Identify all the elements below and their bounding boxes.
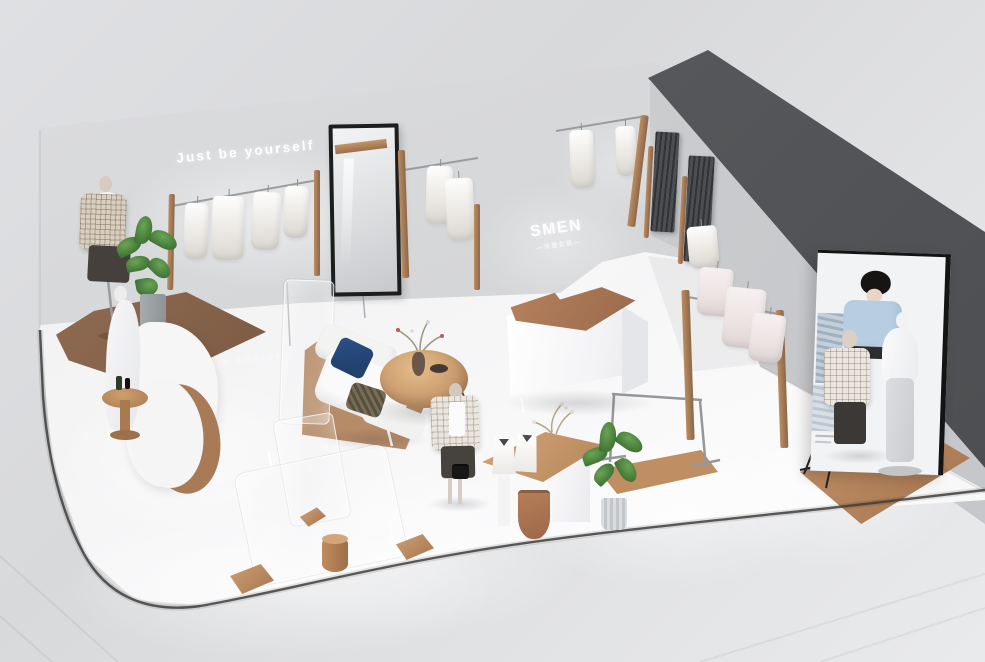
plant-leaf bbox=[614, 427, 646, 456]
hanging-garment bbox=[211, 196, 244, 261]
mannequin-leg bbox=[458, 479, 462, 504]
display-table-leg bbox=[498, 468, 510, 526]
leaning-mirror bbox=[329, 123, 402, 296]
mannequin-head bbox=[99, 176, 112, 192]
plant-leaf bbox=[614, 455, 641, 486]
hanging-garment bbox=[251, 191, 282, 250]
hanging-garment bbox=[569, 130, 595, 189]
table-vase bbox=[412, 352, 425, 376]
mirror-reflection-shelf bbox=[335, 139, 388, 154]
white-mannequin-base bbox=[878, 466, 922, 476]
white-shopping-bag bbox=[492, 438, 516, 474]
mirror-highlight bbox=[340, 158, 354, 268]
plant-leaf bbox=[148, 226, 180, 254]
side-table-leg bbox=[120, 400, 130, 434]
hanging-garment bbox=[283, 186, 309, 239]
white-mannequin-torso bbox=[882, 328, 918, 382]
side-table-base bbox=[110, 430, 140, 440]
white-mannequin-head bbox=[896, 312, 910, 329]
rack-post bbox=[314, 170, 320, 276]
mannequin-plaid-jacket bbox=[824, 348, 870, 406]
black-handbag bbox=[452, 464, 469, 479]
wood-stool-top bbox=[322, 534, 348, 544]
mannequin-skirt bbox=[834, 402, 866, 444]
brown-bag bbox=[518, 490, 550, 539]
store-render-scene: Just be yourself bbox=[0, 0, 985, 662]
counter-shadow bbox=[505, 390, 655, 416]
wood-stool bbox=[322, 536, 348, 572]
hanging-garment bbox=[444, 177, 475, 240]
hanging-garment bbox=[183, 203, 209, 260]
mannequin-head bbox=[842, 330, 857, 348]
white-mannequin-pants bbox=[886, 378, 914, 462]
mannequin-leg bbox=[448, 478, 452, 504]
decor-bottle bbox=[116, 376, 122, 390]
hanging-garment bbox=[747, 312, 787, 364]
plant-pot bbox=[601, 498, 627, 530]
table-bowl bbox=[430, 364, 448, 373]
plant-leaf bbox=[599, 421, 618, 452]
hanging-garment bbox=[686, 225, 720, 269]
rack-post bbox=[474, 204, 480, 290]
mannequin-white-top bbox=[449, 402, 465, 436]
poster-caption-line bbox=[815, 441, 831, 444]
mannequin-shadow bbox=[824, 448, 894, 464]
decor-bottle bbox=[125, 378, 130, 389]
